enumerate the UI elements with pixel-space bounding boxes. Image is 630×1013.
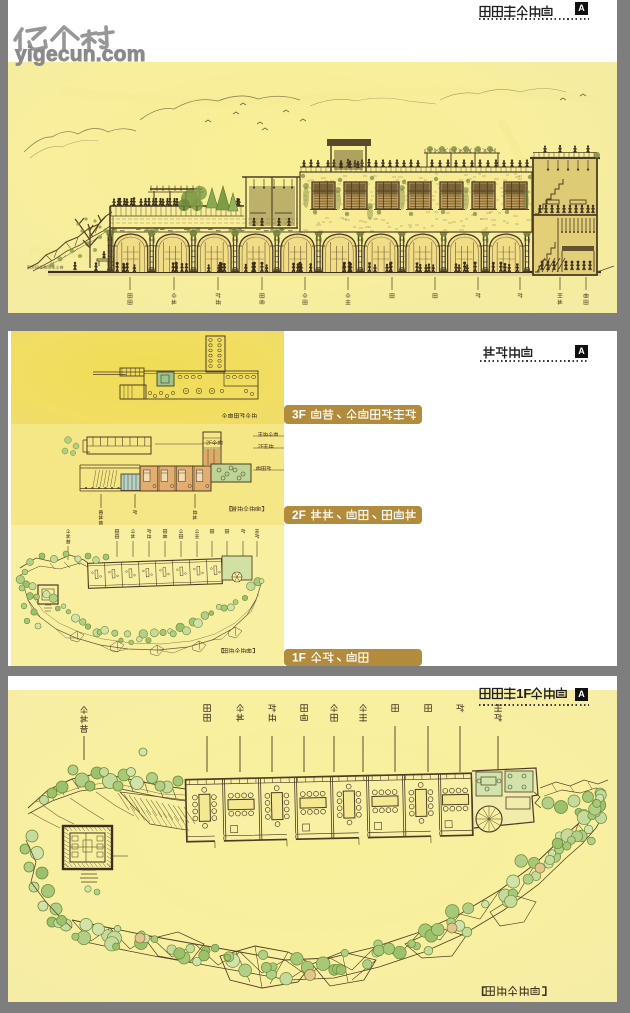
svg-text:2F: 2F bbox=[258, 444, 264, 450]
svg-text:2F: 2F bbox=[292, 508, 306, 522]
svg-text:2F: 2F bbox=[206, 440, 213, 446]
svg-text:1F: 1F bbox=[292, 651, 306, 665]
svg-text:3F: 3F bbox=[292, 408, 306, 422]
